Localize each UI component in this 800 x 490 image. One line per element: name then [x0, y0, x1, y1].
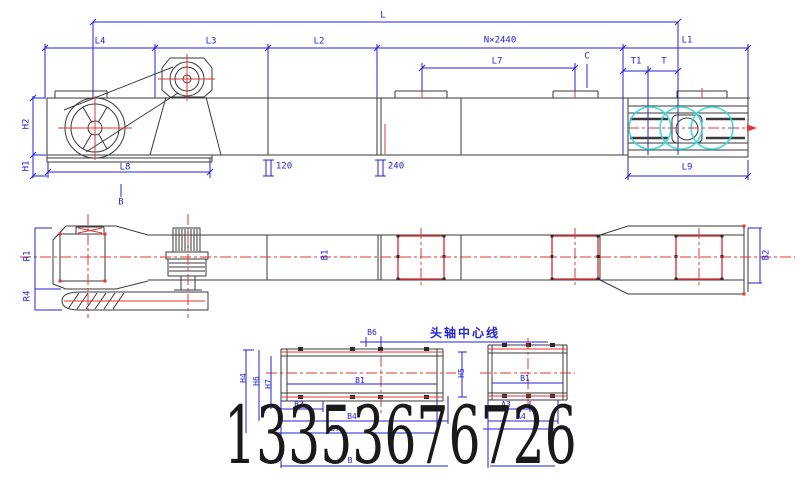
- dim-label-h5: H5: [458, 368, 466, 378]
- head-takeup-block: [630, 115, 745, 143]
- dim-label-l3: L3: [206, 38, 217, 47]
- dim-label-h2: H2: [23, 119, 32, 130]
- dim-label-b2: B2: [763, 250, 772, 261]
- dim-label-h7: H7: [265, 379, 273, 389]
- phone-number-watermark: 13353676726: [224, 396, 577, 476]
- dim-label-b1: B1: [322, 250, 331, 261]
- dim-label-h6: H6: [253, 376, 261, 386]
- dim-label-h4: H4: [240, 373, 248, 383]
- dim-label-r1: R1: [24, 251, 33, 262]
- dim-label-t: T: [661, 58, 666, 67]
- dim-label-t1: T1: [631, 58, 642, 67]
- drive-gearbox: [166, 228, 208, 290]
- dim-label-b6: B6: [367, 329, 377, 337]
- centerline-arrow: [747, 125, 757, 132]
- dim-label-l8: L8: [120, 164, 131, 173]
- dim-label-l9: L9: [682, 164, 693, 173]
- dim-label-r4: R4: [24, 291, 33, 302]
- dim-label-240: 240: [388, 163, 404, 172]
- dim-label-c: C: [584, 53, 589, 62]
- plan-centerlines: [20, 214, 795, 318]
- dim-label-l4: L4: [95, 38, 106, 47]
- axis-note-head-centerline: 头轴中心线: [430, 327, 500, 339]
- dim-label-h1: H1: [23, 161, 32, 172]
- plan-view: [20, 214, 795, 318]
- dim-label-120: 120: [276, 163, 292, 172]
- scraper-return-bar: [62, 292, 208, 310]
- dim-label-section-left-inner: B1: [355, 377, 365, 385]
- dim-label-l2: L2: [314, 38, 325, 47]
- cad-drawing-page: L L4 L3 L2 N×2440 L1 L7 C T1 T H2 H1 L8 …: [0, 0, 800, 490]
- dim-label-pitch-n2440: N×2440: [484, 37, 517, 46]
- dim-label-l7: L7: [492, 58, 503, 67]
- section-mark-b: B: [118, 199, 123, 208]
- dim-label-section-right-inner: B1: [520, 375, 530, 383]
- dim-label-l1: L1: [682, 37, 693, 46]
- dim-label-overall-l: L: [380, 12, 385, 21]
